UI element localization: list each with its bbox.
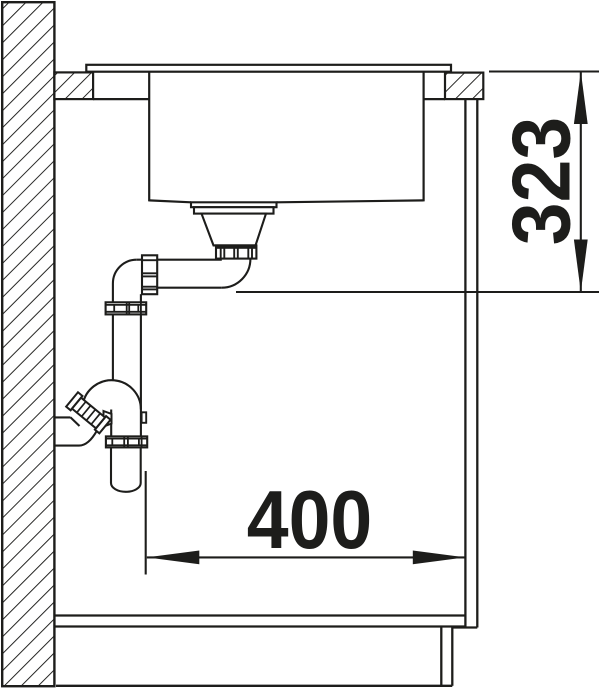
svg-text:323: 323 — [495, 117, 588, 246]
svg-text:400: 400 — [247, 473, 373, 566]
